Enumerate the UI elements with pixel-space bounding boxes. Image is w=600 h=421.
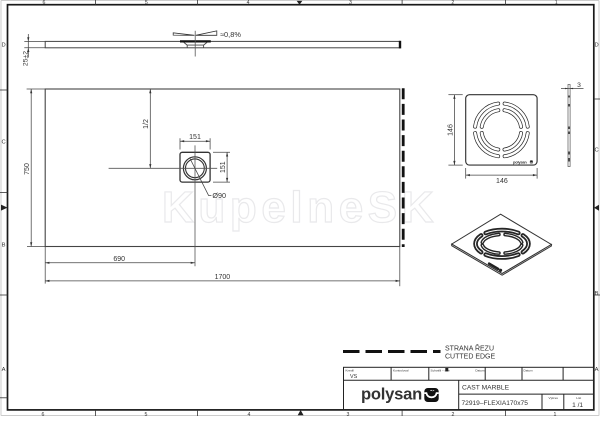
svg-text:A: A xyxy=(2,367,6,373)
svg-text:3: 3 xyxy=(347,412,350,416)
svg-text:4: 4 xyxy=(247,0,250,6)
svg-text:KupelneSK: KupelneSK xyxy=(162,183,438,232)
svg-text:CUTTED EDGE: CUTTED EDGE xyxy=(445,354,496,361)
svg-text:B: B xyxy=(595,291,599,297)
svg-text:1700: 1700 xyxy=(215,274,231,281)
svg-text:Datum: Datum xyxy=(524,368,534,372)
svg-text:1: 1 xyxy=(554,412,557,416)
svg-text:2: 2 xyxy=(452,412,455,416)
svg-text:25±2: 25±2 xyxy=(23,51,30,66)
svg-text:Ø90: Ø90 xyxy=(212,191,226,200)
svg-text:Kreslil: Kreslil xyxy=(346,368,355,372)
svg-text:690: 690 xyxy=(113,256,125,263)
svg-text:6: 6 xyxy=(42,412,45,416)
svg-text:CAST MARBLE: CAST MARBLE xyxy=(462,385,510,392)
svg-text:1: 1 xyxy=(555,0,558,6)
svg-text:151: 151 xyxy=(220,161,227,173)
svg-text:polysan: polysan xyxy=(361,385,422,404)
svg-text:≈0,8%: ≈0,8% xyxy=(220,30,241,39)
svg-text:6: 6 xyxy=(42,0,45,6)
svg-text:1 /1: 1 /1 xyxy=(572,402,583,409)
svg-text:B: B xyxy=(2,243,6,249)
svg-text:C: C xyxy=(595,148,599,154)
svg-text:146: 146 xyxy=(496,178,508,185)
svg-text:D: D xyxy=(595,43,599,49)
svg-text:5: 5 xyxy=(145,0,148,6)
svg-text:151: 151 xyxy=(189,134,201,141)
svg-text:3: 3 xyxy=(577,82,581,89)
svg-text:List: List xyxy=(576,396,581,400)
svg-text:146: 146 xyxy=(447,124,454,136)
svg-text:750: 750 xyxy=(24,163,31,175)
svg-text:D: D xyxy=(2,43,6,49)
svg-text:STRANA ŘEZU: STRANA ŘEZU xyxy=(445,343,494,352)
svg-text:A: A xyxy=(595,367,599,373)
svg-text:VS: VS xyxy=(350,374,358,380)
svg-text:Datum: Datum xyxy=(475,368,485,372)
svg-text:5: 5 xyxy=(145,412,148,416)
svg-text:Výkres: Výkres xyxy=(549,396,559,400)
svg-text:polysan: polysan xyxy=(513,159,527,164)
svg-text:72919–FLEXIA170x75: 72919–FLEXIA170x75 xyxy=(462,400,529,407)
svg-text:3: 3 xyxy=(349,0,352,6)
svg-text:4: 4 xyxy=(248,412,251,416)
svg-text:Kontroloval: Kontroloval xyxy=(393,368,409,372)
svg-text:2: 2 xyxy=(451,0,454,6)
svg-text:C: C xyxy=(2,140,6,146)
svg-text:1/2: 1/2 xyxy=(143,119,150,129)
